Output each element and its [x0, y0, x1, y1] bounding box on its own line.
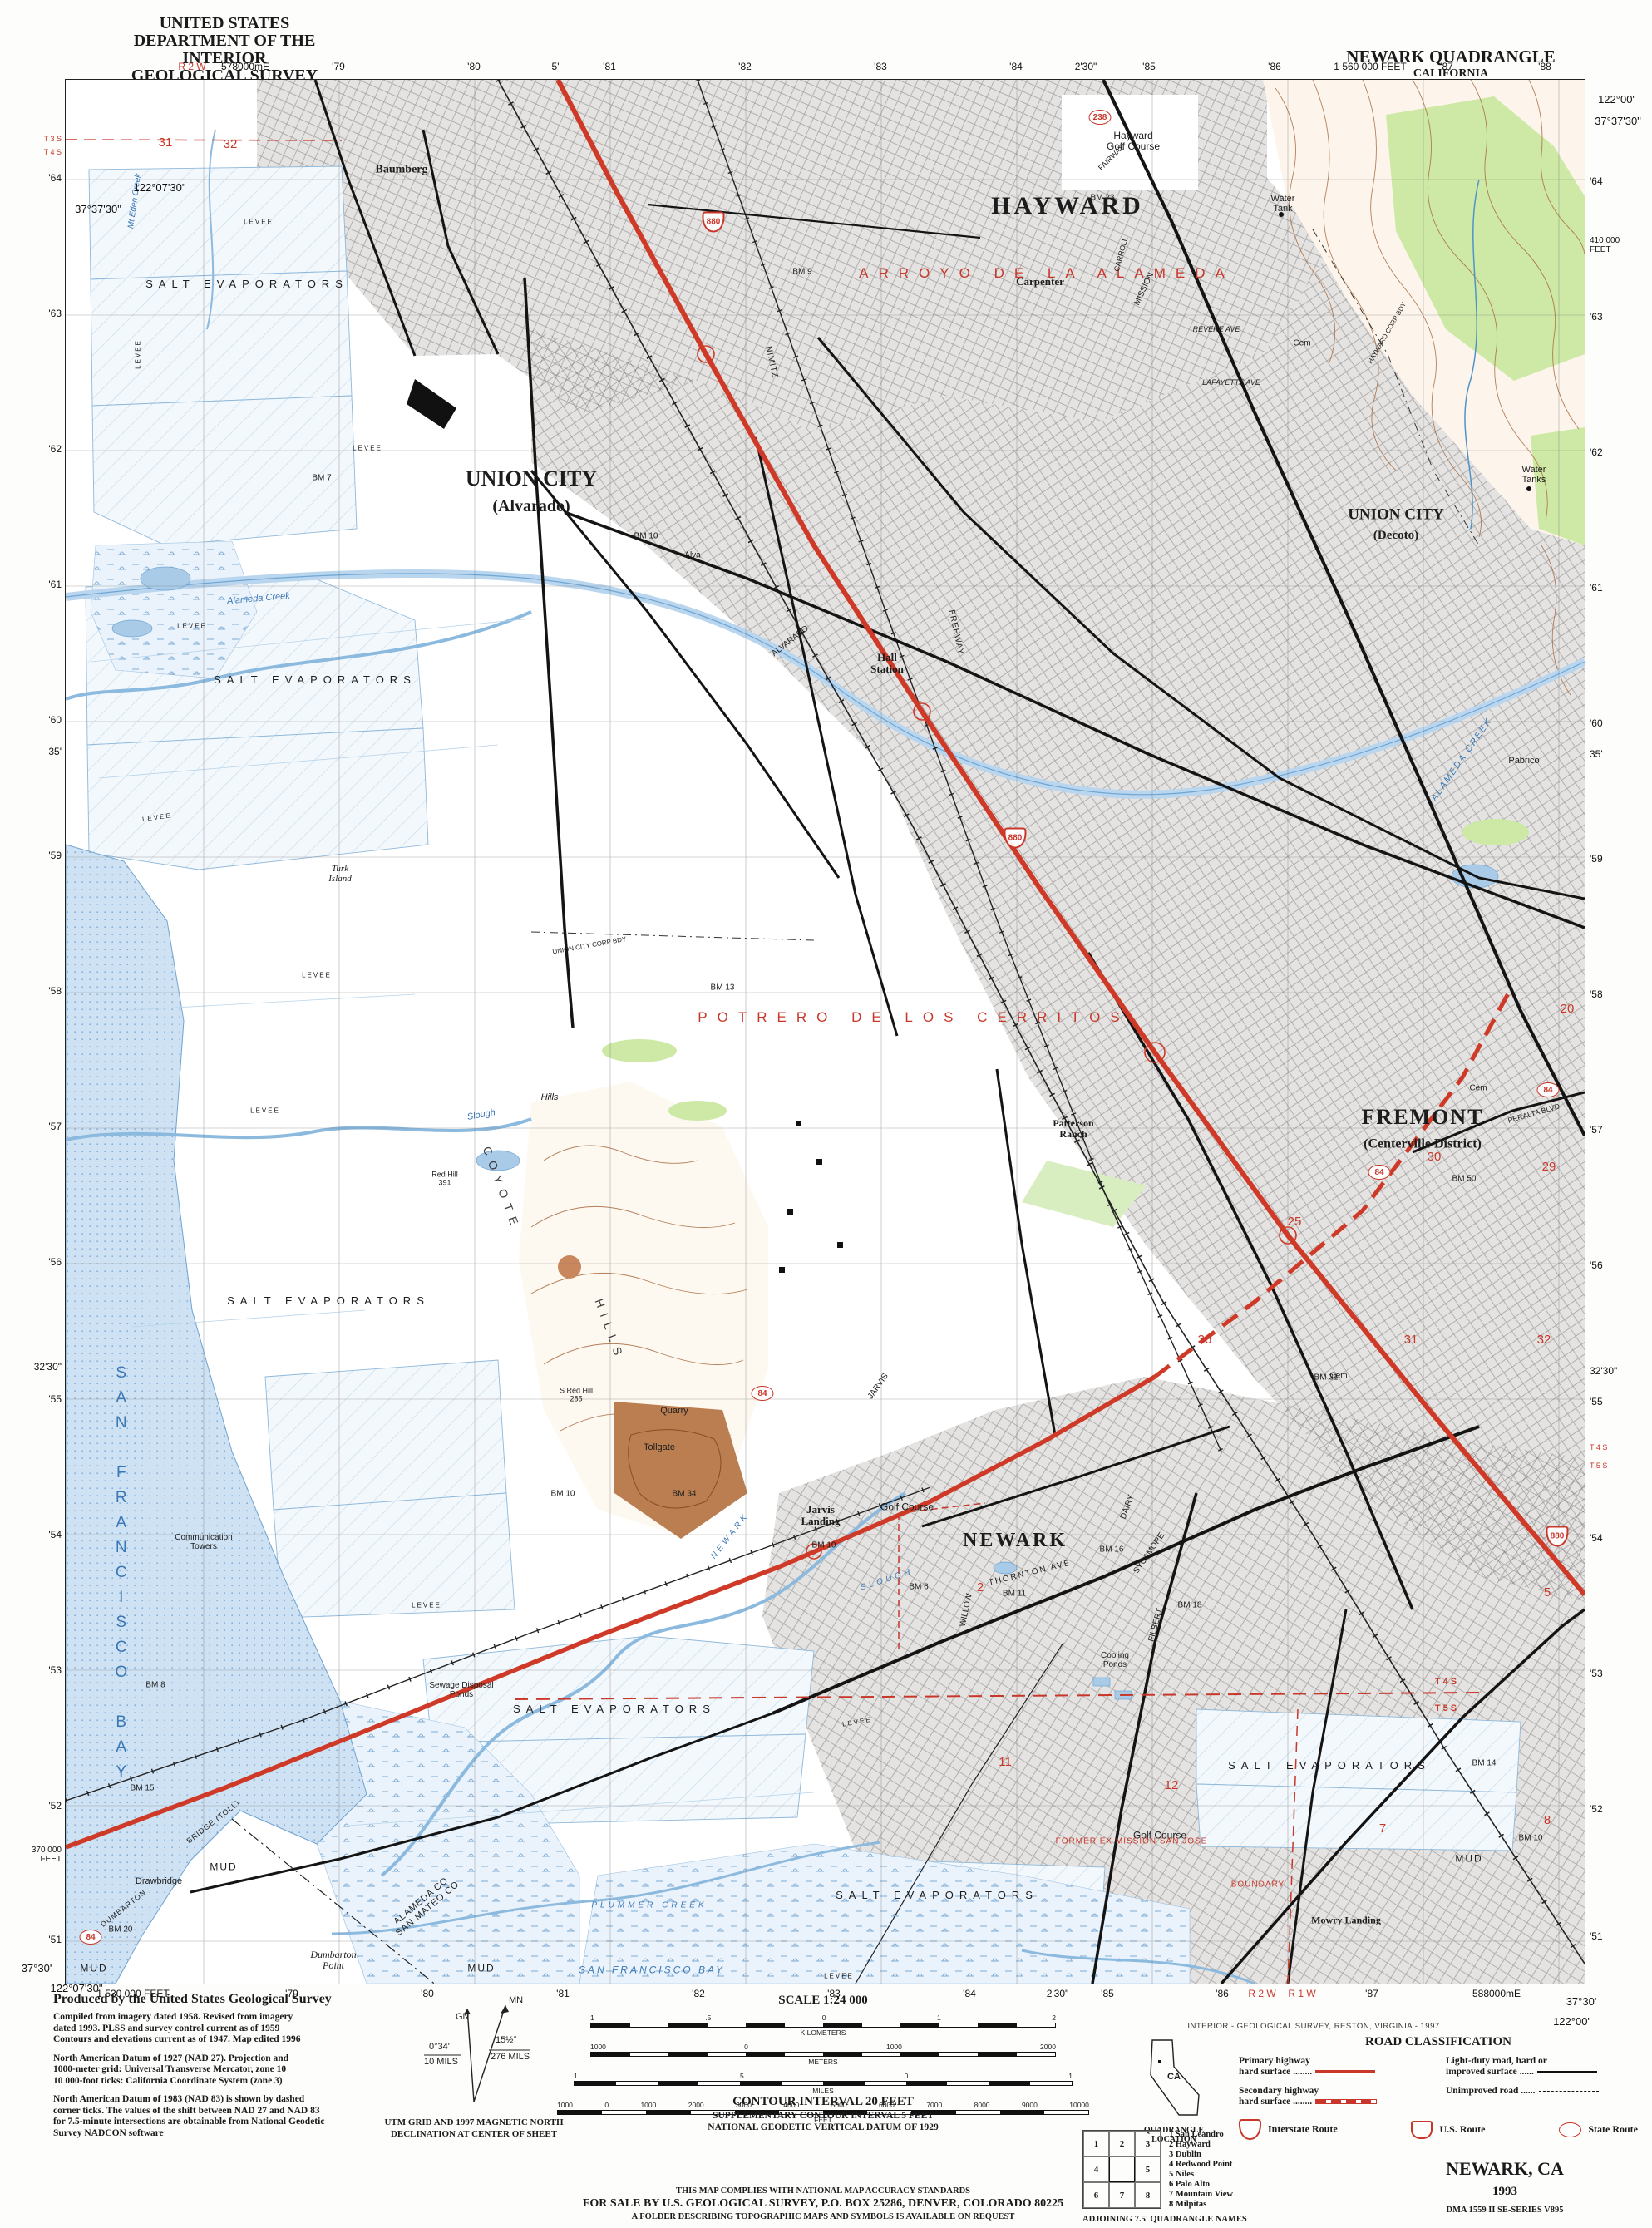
- edge-tick: 2'30": [1047, 1989, 1069, 1999]
- route-shield: 84: [1368, 1165, 1391, 1180]
- map-label: SAN FRANCISCO BAY: [112, 1364, 130, 1788]
- scale-bar-number: 0: [905, 2072, 909, 2080]
- edge-tick: '52: [1590, 1804, 1603, 1815]
- sale-note: FOR SALE BY U.S. GEOLOGICAL SURVEY, P.O.…: [466, 2197, 1181, 2211]
- route-shield: 880: [703, 212, 725, 233]
- map-label: Mowry Landing: [1311, 1915, 1381, 1926]
- map-label: 30: [1428, 1151, 1442, 1164]
- map-label: ALAMEDA CO SAN MATEO CO: [388, 1872, 461, 1939]
- map-name: NEWARK, CA: [1380, 2158, 1630, 2180]
- scale-bar: 1.501MILES: [574, 2072, 1073, 2095]
- road-class-swatch: [1539, 2091, 1599, 2092]
- map-label: ALAMEDA CREEK: [1430, 717, 1495, 803]
- scale-bar-unit: METERS: [590, 2058, 1056, 2066]
- route-shield: 84: [1537, 1082, 1560, 1097]
- road-class-row: Light-duty road, hard orimproved surface…: [1446, 2056, 1638, 2078]
- map-label: SLOUGH: [860, 1568, 915, 1594]
- edge-tick: '56: [1590, 1260, 1603, 1271]
- adjoining-name: 4 Redwood Point: [1169, 2160, 1349, 2170]
- scale-bar-number: 1: [937, 2014, 941, 2022]
- map-year: 1993: [1380, 2185, 1630, 2199]
- adjoining-grid: 12345678: [1082, 2130, 1161, 2209]
- corner-coordinate: 37°37'30": [1595, 116, 1641, 127]
- edge-tick: T 4 S: [3, 149, 62, 156]
- edge-tick: '85: [1142, 62, 1156, 72]
- accuracy-note: THIS MAP COMPLIES WITH NATIONAL MAP ACCU…: [466, 2186, 1181, 2196]
- map-label: UNION CITY CORP BDY: [552, 936, 627, 956]
- map-label: BM 9: [792, 269, 811, 278]
- edge-tick: '54: [3, 1530, 62, 1540]
- map-label: Hall Station: [870, 652, 904, 675]
- road-classification: ROAD CLASSIFICATION Primary highwayhard …: [1239, 2035, 1638, 2140]
- road-class-label: Light-duty road, hard or: [1446, 2056, 1547, 2066]
- map-label: BM 23: [1091, 195, 1115, 204]
- road-classification-rows: Primary highwayhard surface ........Seco…: [1239, 2056, 1638, 2107]
- adjoining-cell: 7: [1109, 2182, 1135, 2208]
- map-label: BM 7: [312, 475, 331, 484]
- map-label: PERALTA BLVD: [1507, 1102, 1561, 1125]
- agency-line: UNITED STATES: [100, 15, 349, 32]
- map-label: (Centerville District): [1364, 1136, 1482, 1151]
- road-class-label: hard surface ........: [1239, 2097, 1312, 2107]
- shield-legend-label: U.S. Route: [1439, 2122, 1485, 2134]
- edge-tick: '59: [3, 850, 62, 861]
- edge-tick: T 4 S: [1590, 1444, 1607, 1452]
- edge-tick: 5': [552, 62, 560, 72]
- map-label: BM 8: [145, 1682, 165, 1691]
- route-shield: 880: [1546, 1526, 1569, 1547]
- road-class-row: Secondary highwayhard surface ........: [1239, 2086, 1431, 2107]
- map-label: DUMBARTON: [100, 1889, 149, 1930]
- map-title-block: NEWARK, CA 1993 DMA 1559 II SE-SERIES V8…: [1380, 2158, 1630, 2215]
- map-sheet: UNITED STATES DEPARTMENT OF THE INTERIOR…: [0, 0, 1652, 2228]
- adjoining-caption: ADJOINING 7.5' QUADRANGLE NAMES: [1082, 2210, 1349, 2224]
- edge-tick: '80: [421, 1989, 434, 1999]
- edge-tick: '81: [556, 1989, 570, 1999]
- adjoining-quadrangles: 12345678 1 San Leandro2 Hayward3 Dublin4…: [1082, 2130, 1349, 2224]
- corner-coordinate: 122°07'30": [51, 1983, 103, 1994]
- edge-tick: 588000mE: [1472, 1989, 1521, 1999]
- road-class-swatch: [1537, 2071, 1597, 2073]
- scale-bar: 1000010002000METERS: [590, 2043, 1056, 2066]
- scale-bar-number: 1: [574, 2072, 578, 2080]
- edge-tick: 1 560 000 FEET: [1334, 62, 1406, 72]
- edge-tick: '62: [3, 444, 62, 455]
- edge-tick: 32'30": [3, 1362, 62, 1373]
- map-label: HAYWARD CORP BDY: [1367, 302, 1408, 366]
- gn-offset-degrees: 0°34': [429, 2042, 450, 2052]
- map-label: Slough: [466, 1108, 496, 1123]
- edge-tick: '85: [1101, 1989, 1114, 1999]
- scale-bar-number: .5: [738, 2072, 744, 2080]
- edge-tick: '82: [692, 1989, 705, 1999]
- map-label: Baumberg: [376, 163, 428, 175]
- edge-tick: '83: [827, 1989, 841, 1999]
- edge-tick: T 5 S: [1590, 1462, 1607, 1470]
- edge-tick: '87: [1440, 62, 1453, 72]
- map-label: SALT EVAPORATORS: [836, 1890, 1038, 1901]
- map-label: UNION CITY: [466, 467, 597, 490]
- map-label: S Red Hill 285: [560, 1387, 593, 1402]
- credits-paragraph: Compiled from imagery dated 1958. Revise…: [53, 2012, 411, 2046]
- map-label: BM 15: [131, 1785, 155, 1794]
- road-class-label: hard surface ........: [1239, 2067, 1312, 2077]
- contour-interval: CONTOUR INTERVAL 20 FEET: [549, 2095, 1097, 2109]
- map-label: Jarvis Landing: [801, 1504, 841, 1527]
- map-label: FREMONT: [1362, 1106, 1484, 1129]
- declination-arrows: [391, 1994, 557, 2114]
- edge-tick: '57: [3, 1121, 62, 1132]
- map-label: BM 13: [711, 984, 735, 993]
- map-label: MUD: [80, 1964, 107, 1974]
- adjoining-cell: 6: [1083, 2182, 1109, 2208]
- map-label: BM 50: [1452, 1176, 1477, 1185]
- road-class-label: Secondary highway: [1239, 2086, 1319, 2096]
- route-shield: 84: [752, 1386, 774, 1401]
- map-label: BM 31: [1314, 1374, 1339, 1383]
- map-label: LEVEE: [177, 624, 207, 631]
- map-label: 25: [1288, 1215, 1302, 1229]
- map-label: FILBERT: [1147, 1608, 1165, 1643]
- edge-tick: '53: [3, 1665, 62, 1676]
- map-label: 12: [1165, 1779, 1179, 1792]
- adjoining-name: 5 Niles: [1169, 2170, 1349, 2180]
- adjoining-name: 7 Mountain View: [1169, 2190, 1349, 2200]
- folder-note: A FOLDER DESCRIBING TOPOGRAPHIC MAPS AND…: [466, 2212, 1181, 2221]
- map-label: 8: [1544, 1814, 1551, 1827]
- adjoining-cell: 1: [1083, 2131, 1109, 2157]
- map-label: SALT EVAPORATORS: [513, 1703, 716, 1715]
- edge-tick: 370 000 FEET: [3, 1846, 62, 1864]
- adjoining-cell: 3: [1135, 2131, 1161, 2157]
- route-shield: 238: [1089, 110, 1112, 125]
- scale-bar-number: 1000: [886, 2043, 902, 2051]
- edge-tick: R 2 W: [1248, 1989, 1275, 1999]
- scale-bar-number: 2000: [1040, 2043, 1056, 2051]
- edge-tick: 410 000 FEET: [1590, 237, 1620, 254]
- map-label-layer: HAYWARDUNION CITY(Alvarado)UNION CITY(De…: [66, 80, 1585, 1984]
- adjoining-cell: 8: [1135, 2182, 1161, 2208]
- map-label: MUD: [210, 1862, 237, 1873]
- edge-tick: '64: [3, 173, 62, 184]
- map-label: SALT EVAPORATORS: [1228, 1760, 1431, 1772]
- edge-tick: 32'30": [1590, 1366, 1617, 1377]
- scale-bar-number: 0: [822, 2014, 826, 2022]
- map-label: Cem: [1293, 340, 1310, 349]
- map-label: 11: [999, 1756, 1012, 1769]
- edge-tick: '64: [1590, 176, 1603, 187]
- map-label: Alameda Creek: [227, 592, 291, 607]
- contour-notes: CONTOUR INTERVAL 20 FEET SUPPLEMENTARY C…: [549, 2095, 1097, 2132]
- map-label: 32: [1537, 1333, 1551, 1347]
- road-class-swatch: [1315, 2070, 1375, 2073]
- map-label: 7: [1379, 1822, 1386, 1836]
- route-shield: 880: [1004, 828, 1027, 849]
- scale-bar: 1.5012KILOMETERS: [590, 2014, 1056, 2037]
- map-label: Cem: [1469, 1085, 1487, 1094]
- mn-offset-mils: 276 MILS: [491, 2052, 530, 2062]
- edge-tick: '51: [1590, 1931, 1603, 1942]
- scale-bar-number: .5: [705, 2014, 711, 2022]
- map-label: LEVEE: [353, 446, 382, 453]
- corner-coordinate: 37°30': [1566, 1996, 1597, 2008]
- map-label: Water Tanks: [1522, 466, 1546, 486]
- map-label: Patterson Ranch: [1053, 1118, 1093, 1140]
- state-route-icon: [1559, 2122, 1581, 2137]
- scale-bar-number: 2: [1052, 2014, 1056, 2022]
- edge-tick: '53: [1590, 1669, 1603, 1679]
- edge-tick: '61: [1590, 583, 1603, 594]
- edge-tick: '86: [1216, 1989, 1229, 1999]
- map-label: BM 10: [634, 533, 658, 542]
- map-label: Alva: [684, 552, 700, 561]
- map-label: BM 18: [1178, 1602, 1202, 1611]
- credits-paragraph: North American Datum of 1927 (NAD 27). P…: [53, 2053, 411, 2088]
- map-label: LEVEE: [136, 339, 143, 369]
- map-label: Turk Island: [328, 865, 352, 885]
- edge-tick: 2'30": [1075, 62, 1097, 72]
- map-label: BM 10: [551, 1491, 575, 1500]
- edge-tick: R 1 W: [1288, 1989, 1315, 1999]
- edge-tick: 35': [1590, 749, 1603, 760]
- edge-tick: '61: [3, 579, 62, 590]
- map-label: HILLS: [592, 1297, 626, 1363]
- mn-offset-degrees: 15½°: [496, 2035, 517, 2045]
- scale-bar-number: 0: [744, 2043, 748, 2051]
- corner-coordinate: 122°07'30": [134, 182, 186, 194]
- map-label: PLUMMER CREEK: [591, 1902, 707, 1911]
- map-label: 20: [1561, 1003, 1575, 1016]
- edge-tick: 35': [3, 747, 62, 757]
- map-label: REVERE AVE: [1193, 326, 1240, 334]
- map-label: HAYWARD: [991, 193, 1144, 219]
- state-abbrev: CA: [1167, 2072, 1181, 2082]
- map-label: LEVEE: [142, 812, 173, 824]
- map-label: THORNTON AVE: [988, 1559, 1073, 1588]
- shield-legend-item: State Route: [1559, 2122, 1638, 2137]
- magnetic-north-label: MN: [509, 1995, 523, 2005]
- map-label: T 5 S: [1435, 1704, 1457, 1714]
- map-label: SYCAMORE: [1132, 1531, 1167, 1575]
- edge-tick: '79: [285, 1989, 298, 1999]
- map-label: JARVIS: [867, 1373, 891, 1402]
- map-label: LEVEE: [842, 1717, 873, 1729]
- map-label: UNION CITY: [1348, 507, 1444, 525]
- corner-coordinate: 37°30': [22, 1963, 52, 1974]
- adjoining-cell: 2: [1109, 2131, 1135, 2157]
- adjoining-name: 1 San Leandro: [1169, 2130, 1349, 2140]
- edge-tick: '60: [3, 715, 62, 726]
- map-label: LAFAYETTE AVE: [1202, 379, 1260, 387]
- scale-title: SCALE 1:24 000: [549, 1994, 1097, 2008]
- map-label: LEVEE: [244, 219, 274, 227]
- edge-tick: R 2 W: [178, 62, 205, 72]
- map-label: 32: [224, 138, 238, 151]
- edge-tick: '87: [1365, 1989, 1378, 1999]
- edge-tick: '59: [1590, 854, 1603, 865]
- quadrangle-location: CA QUADRANGLE LOCATION: [1124, 2035, 1224, 2144]
- map-label: BM 16: [1100, 1546, 1124, 1555]
- shield-legend-label: State Route: [1588, 2122, 1638, 2134]
- map-label: FREEWAY: [946, 609, 964, 656]
- map-label: DAIRY: [1120, 1494, 1137, 1521]
- map-label: BM 14: [1472, 1760, 1497, 1769]
- map-label: LEVEE: [824, 1974, 854, 1981]
- map-label: Communication Towers: [175, 1534, 232, 1552]
- map-label: SALT EVAPORATORS: [214, 674, 417, 686]
- map-label: MUD: [1455, 1854, 1482, 1865]
- adjoining-name: 8 Milpitas: [1169, 2200, 1349, 2210]
- road-class-swatch: [1315, 2099, 1377, 2104]
- u-s-route-icon: [1411, 2121, 1433, 2139]
- adjoining-cell: 5: [1135, 2157, 1161, 2182]
- edge-tick: '58: [3, 986, 62, 997]
- edge-tick: '57: [1590, 1125, 1603, 1136]
- corner-coordinate: 122°00': [1598, 94, 1635, 106]
- edge-tick: '86: [1268, 62, 1281, 72]
- road-class-label: improved surface ......: [1446, 2067, 1534, 2077]
- supplementary-contour: SUPPLEMENTARY CONTOUR INTERVAL 5 FEET: [549, 2111, 1097, 2121]
- map-series-number: DMA 1559 II SE-SERIES V895: [1380, 2206, 1630, 2215]
- shield-legend-item: U.S. Route: [1411, 2121, 1485, 2139]
- corner-coordinate: 122°00': [1553, 2016, 1590, 2028]
- map-label: WILLOW: [959, 1593, 975, 1628]
- edge-tick: '63: [3, 308, 62, 319]
- map-label: 31: [1404, 1333, 1418, 1347]
- scale-bar-number: 1: [590, 2014, 594, 2022]
- map-label: Quarry: [660, 1407, 688, 1417]
- route-shield: 84: [80, 1930, 102, 1945]
- map-label: Cooling Ponds: [1101, 1652, 1129, 1670]
- edge-tick: 578000mE: [221, 62, 269, 72]
- edge-tick: 1 530 000 FEET: [96, 1989, 169, 1999]
- map-label: Hills: [541, 1093, 559, 1103]
- edge-tick: '88: [1538, 62, 1551, 72]
- edge-tick: '54: [1590, 1533, 1603, 1544]
- map-label: 29: [1542, 1161, 1556, 1174]
- road-class-row: Primary highwayhard surface ........: [1239, 2056, 1431, 2078]
- edge-tick: '58: [1590, 989, 1603, 1000]
- road-class-label: Unimproved road ......: [1446, 2086, 1536, 2096]
- adjoining-cell: 4: [1083, 2157, 1109, 2182]
- adjoining-cell: [1109, 2157, 1135, 2182]
- adjoining-name: 3 Dublin: [1169, 2150, 1349, 2160]
- adjoining-name: 2 Hayward: [1169, 2140, 1349, 2150]
- map-label: BM 10: [812, 1542, 836, 1551]
- map-label: Tollgate: [644, 1443, 675, 1453]
- agency-header: UNITED STATES DEPARTMENT OF THE INTERIOR…: [100, 15, 349, 85]
- map-label: BOUNDARY: [1231, 1881, 1285, 1890]
- map-label: 31: [159, 136, 173, 150]
- road-classification-title: ROAD CLASSIFICATION: [1239, 2035, 1638, 2049]
- map-label: Pabrico: [1508, 757, 1539, 766]
- adjoining-names: 1 San Leandro2 Hayward3 Dublin4 Redwood …: [1169, 2130, 1349, 2210]
- edge-tick: T 3 S: [3, 136, 62, 143]
- map-label: Red Hill 391: [431, 1171, 458, 1186]
- road-class-row: Unimproved road ......: [1446, 2086, 1638, 2107]
- map-label: BM 34: [673, 1491, 697, 1500]
- edge-tick: '62: [1590, 447, 1603, 458]
- map-label: MUD: [467, 1964, 495, 1974]
- declination-diagram: GN MN 0°34' 10 MILS 15½° 276 MILS UTM GR…: [391, 1994, 557, 2152]
- map-label: SALT EVAPORATORS: [227, 1295, 430, 1307]
- edge-tick: '55: [1590, 1397, 1603, 1407]
- scale-bar-unit: MILES: [574, 2087, 1073, 2095]
- map-label: BM 6: [909, 1584, 928, 1593]
- map-label: BRIDGE (TOLL): [185, 1799, 242, 1846]
- edge-tick: '80: [467, 62, 481, 72]
- vertical-datum: NATIONAL GEODETIC VERTICAL DATUM OF 1929: [549, 2122, 1097, 2132]
- edge-tick: '84: [963, 1989, 976, 1999]
- map-label: Water Tank: [1271, 195, 1295, 214]
- edge-tick: '79: [332, 62, 345, 72]
- edge-tick: '84: [1009, 62, 1023, 72]
- map-label: T 4 S: [1435, 1678, 1457, 1688]
- edge-tick: '52: [3, 1801, 62, 1811]
- map-label: Dumbarton Point: [310, 1949, 356, 1971]
- map-label: SAN FRANCISCO BAY: [579, 1965, 725, 1976]
- map-label: ALVARADO: [771, 624, 811, 658]
- map-label: Sewage Disposal Ponds: [429, 1682, 493, 1700]
- edge-tick: '83: [874, 62, 887, 72]
- map-label: (Decoto): [1373, 529, 1418, 542]
- scale-bar-unit: KILOMETERS: [590, 2028, 1056, 2037]
- map-label: BM 20: [109, 1926, 133, 1935]
- edge-tick: '63: [1590, 312, 1603, 323]
- map-label: FORMER EX MISSION SAN JOSE: [1056, 1838, 1208, 1847]
- edge-tick: '81: [603, 62, 616, 72]
- map-label: Golf Course: [880, 1502, 934, 1513]
- grid-north-label: GN: [456, 2012, 470, 2022]
- map-label: 2: [977, 1581, 984, 1595]
- map-label: LEVEE: [302, 973, 332, 980]
- map-label: LEVEE: [412, 1603, 441, 1610]
- edge-tick: '56: [3, 1257, 62, 1268]
- edge-tick: '51: [3, 1935, 62, 1945]
- edge-tick: '60: [1590, 718, 1603, 729]
- map-label: COYOTE: [481, 1145, 523, 1233]
- map-label: NEWARK: [710, 1511, 752, 1561]
- survey-credit-line: INTERIOR - GEOLOGICAL SURVEY, RESTON, VI…: [1164, 2022, 1463, 2031]
- map-label: POTRERO DE LOS CERRITOS: [698, 1010, 1129, 1025]
- gn-offset-mils: 10 MILS: [424, 2057, 458, 2067]
- map-label: Drawbridge: [136, 1877, 182, 1887]
- map-label: 5: [1544, 1586, 1551, 1600]
- scale-bar-number: 1: [1068, 2072, 1073, 2080]
- sale-notes: THIS MAP COMPLIES WITH NATIONAL MAP ACCU…: [466, 2186, 1181, 2221]
- adjoining-name: 6 Palo Alto: [1169, 2180, 1349, 2190]
- map-label: NIMITZ: [763, 346, 779, 380]
- corner-coordinate: 37°37'30": [75, 204, 121, 215]
- map-label: ARROYO DE LA ALAMEDA: [859, 266, 1235, 281]
- map-area: HAYWARDUNION CITY(Alvarado)UNION CITY(De…: [65, 79, 1585, 1984]
- map-label: BM 11: [1003, 1590, 1026, 1600]
- map-label: BM 10: [1519, 1835, 1543, 1844]
- map-label: (Alvarado): [492, 498, 570, 516]
- road-class-label: Primary highway: [1239, 2056, 1310, 2066]
- edge-tick: '82: [738, 62, 752, 72]
- edge-tick: '55: [3, 1394, 62, 1405]
- scale-bar-number: 1000: [590, 2043, 606, 2051]
- map-label: SALT EVAPORATORS: [145, 278, 348, 290]
- map-label: 36: [1198, 1333, 1212, 1347]
- map-label: NEWARK: [963, 1531, 1068, 1552]
- map-label: LEVEE: [250, 1108, 280, 1116]
